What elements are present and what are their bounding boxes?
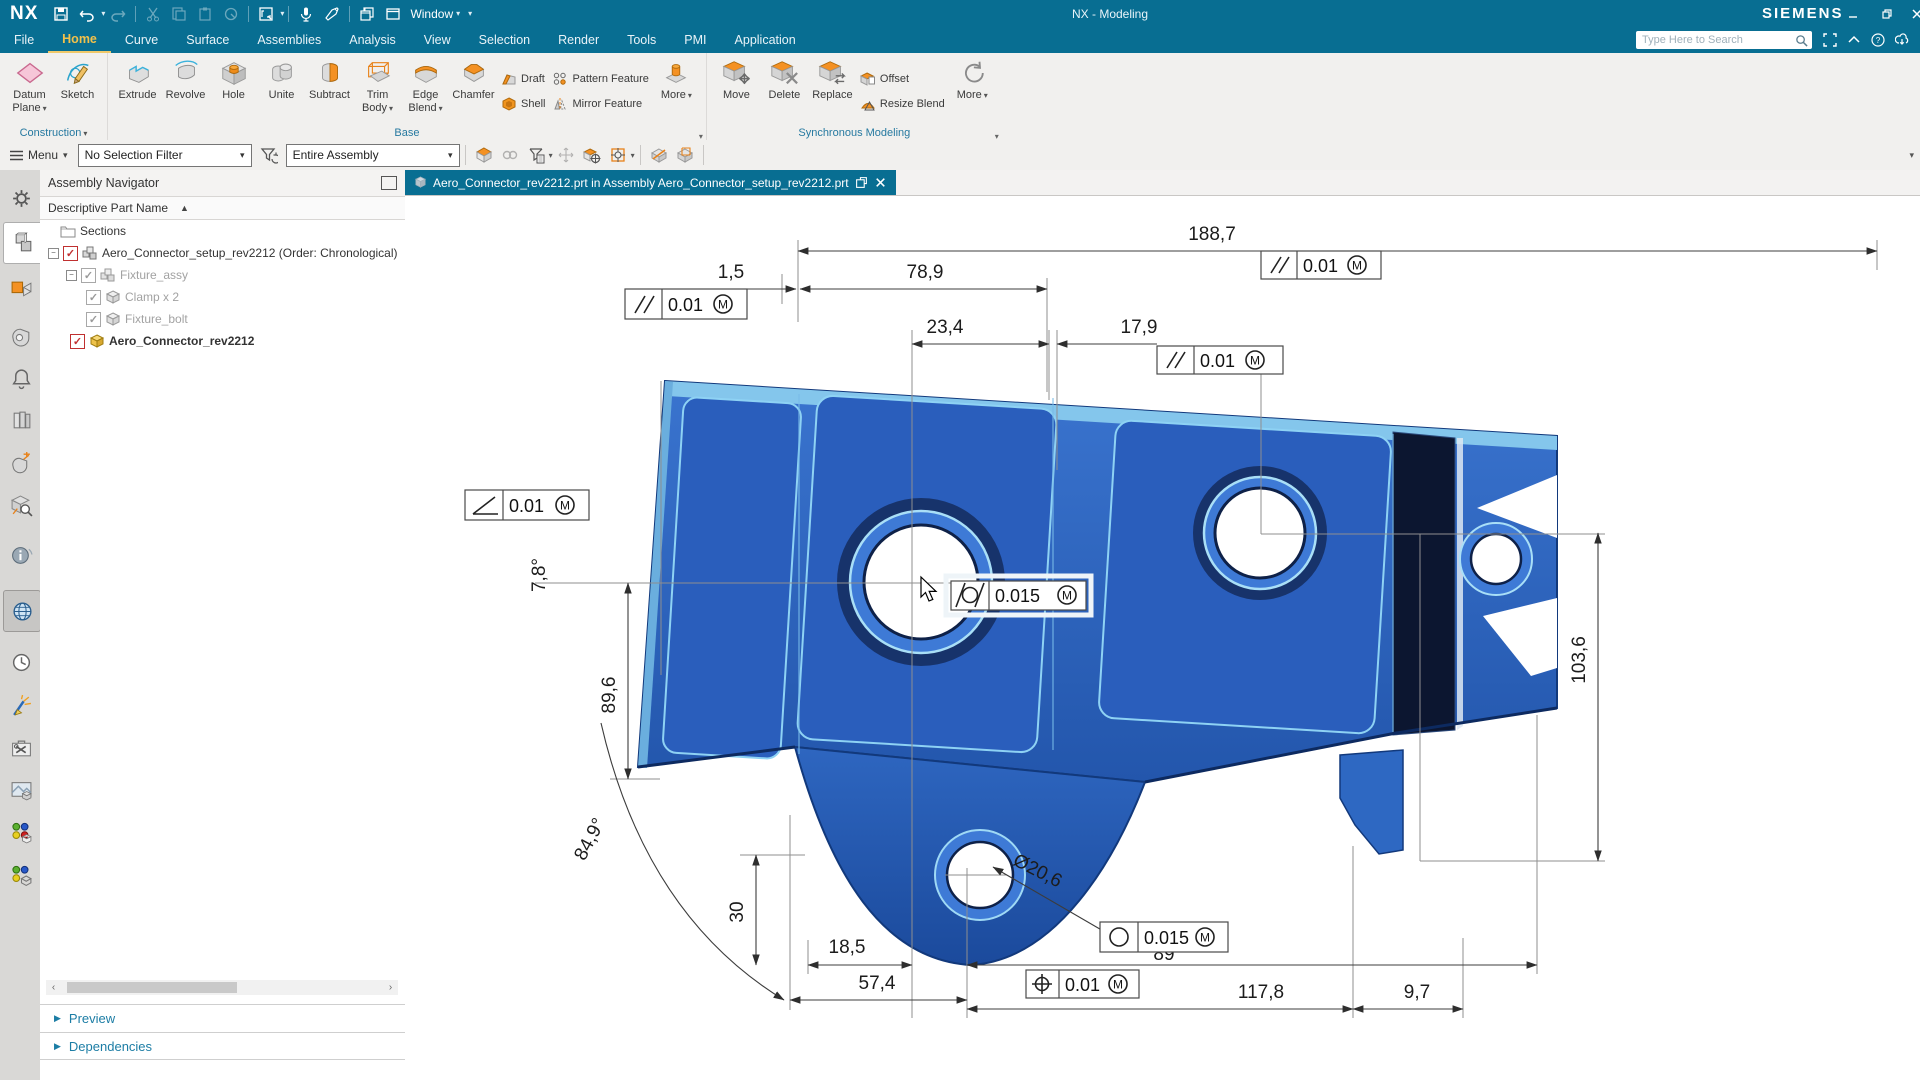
- mirror-feature-label: Mirror Feature: [572, 98, 642, 110]
- draft-icon: [501, 71, 517, 87]
- menu-label: Menu: [28, 148, 58, 162]
- datum-plane-button[interactable]: Datum Plane: [6, 55, 53, 127]
- hole-icon: [219, 58, 249, 88]
- dim-gap[interactable]: 1,5: [718, 262, 744, 283]
- feature-wand-icon[interactable]: [3, 685, 39, 725]
- sync-more-icon: [957, 58, 987, 88]
- fcf-position[interactable]: 0.01 M: [1026, 970, 1139, 998]
- selection-scope-select[interactable]: Entire Assembly ▾: [286, 144, 460, 167]
- dim-s117[interactable]: 117,8: [1238, 982, 1284, 1003]
- tree-row-assembly-root[interactable]: Aero_Connector_setup_rev2212 (Order: Chr…: [40, 242, 405, 264]
- svg-text:M: M: [1250, 354, 1260, 368]
- scrollbar-track[interactable]: [61, 981, 383, 994]
- search-input[interactable]: [1640, 33, 1795, 47]
- datum-plane-icon: [15, 58, 45, 88]
- sync-more-button[interactable]: More: [949, 55, 996, 127]
- fcf-parallelism-top[interactable]: 0.01 M: [1261, 251, 1381, 279]
- datum-measure-icon[interactable]: [3, 442, 39, 482]
- paste-icon[interactable]: [193, 3, 217, 25]
- fcf-circularity[interactable]: 0.015 M: [1100, 922, 1228, 952]
- tab-selection[interactable]: Selection: [465, 28, 544, 52]
- scrollbar-thumb[interactable]: [67, 982, 237, 993]
- sketch-button[interactable]: Sketch: [54, 55, 101, 127]
- panel-float-icon[interactable]: [381, 176, 397, 190]
- save-icon[interactable]: [49, 3, 73, 25]
- touch-mode-icon[interactable]: [320, 3, 344, 25]
- navigator-title: Assembly Navigator: [48, 176, 159, 190]
- draft-button[interactable]: Draft: [498, 68, 548, 90]
- color-palette-icon[interactable]: [3, 855, 39, 895]
- fullscreen-icon[interactable]: [1818, 30, 1842, 50]
- tab-home[interactable]: Home: [48, 27, 111, 53]
- replace-button[interactable]: Replace: [809, 55, 856, 127]
- ribbon-group-synchronous: Move Delete Replace Offset Resize Blend: [706, 53, 1002, 142]
- part-search-icon[interactable]: [3, 485, 39, 525]
- tree-row-work-part[interactable]: Aero_Connector_rev2212: [40, 330, 405, 352]
- part-file-icon: [414, 176, 427, 189]
- extrude-icon: [123, 58, 153, 88]
- preview-section[interactable]: ▶ Preview: [40, 1004, 419, 1031]
- assembly-icon: [82, 246, 98, 260]
- delete-label: Delete: [769, 89, 801, 102]
- part-navigator-icon[interactable]: [3, 315, 39, 355]
- svg-text:M: M: [1113, 978, 1123, 992]
- column-header[interactable]: Descriptive Part Name ▲: [40, 196, 405, 220]
- move-face-icon: [721, 58, 751, 88]
- assembly-navigator-icon[interactable]: [3, 222, 42, 264]
- subtract-button[interactable]: Subtract: [306, 55, 353, 127]
- checkbox-checked[interactable]: [63, 246, 78, 261]
- trim-body-button[interactable]: Trim Body: [354, 55, 401, 127]
- unite-button[interactable]: Unite: [258, 55, 305, 127]
- trim-body-icon: [363, 58, 393, 88]
- help-icon[interactable]: ?: [1866, 30, 1890, 50]
- undo-icon[interactable]: [75, 3, 99, 25]
- subtract-icon: [315, 58, 345, 88]
- fcf-cylindricity-highlighted[interactable]: 0.015 M: [946, 576, 1091, 615]
- resize-blend-label: Resize Blend: [880, 98, 945, 110]
- revolve-icon: [171, 58, 201, 88]
- part-panel-gap: [1457, 438, 1463, 730]
- svg-text:M: M: [718, 298, 728, 312]
- datum-plane-label: Datum Plane: [6, 89, 53, 114]
- sketch-label: Sketch: [61, 89, 95, 102]
- screenshot-icon[interactable]: [254, 3, 278, 25]
- revolve-button[interactable]: Revolve: [162, 55, 209, 127]
- alerts-bell-icon[interactable]: [3, 358, 39, 398]
- column-header-label: Descriptive Part Name: [48, 201, 168, 215]
- delete-button[interactable]: Delete: [761, 55, 808, 127]
- window-menu[interactable]: Window: [410, 7, 453, 21]
- selection-list-icon[interactable]: [523, 143, 549, 167]
- hole-label: Hole: [222, 89, 245, 102]
- settings-gear-icon[interactable]: [3, 178, 39, 218]
- base-more-icon: [661, 58, 691, 88]
- pattern-feature-label: Pattern Feature: [572, 73, 648, 85]
- dim-h2[interactable]: 30: [727, 901, 748, 922]
- pattern-feature-button[interactable]: Pattern Feature: [549, 68, 651, 90]
- tree-label: Aero_Connector_rev2212: [109, 334, 254, 348]
- tree-row-sections[interactable]: Sections: [40, 220, 405, 242]
- repeat-command-icon[interactable]: [219, 3, 243, 25]
- svg-text:0.01: 0.01: [668, 295, 703, 315]
- tab-tools[interactable]: Tools: [613, 28, 670, 52]
- ribbon-group-base: Extrude Revolve Hole Unite Subtract Trim…: [107, 53, 706, 142]
- part-clevis-hole[interactable]: [1471, 534, 1521, 584]
- dim-o1[interactable]: 18,5: [829, 937, 866, 958]
- tab-file[interactable]: File: [0, 28, 48, 52]
- move-object-icon[interactable]: [553, 143, 579, 167]
- toolbar-overflow-caret[interactable]: ▾: [1909, 150, 1914, 161]
- checkbox-checked-inactive[interactable]: [86, 290, 101, 305]
- mirror-feature-button[interactable]: Mirror Feature: [549, 93, 651, 115]
- window-layout-icon[interactable]: [381, 3, 405, 25]
- dim-w2[interactable]: 23,4: [927, 317, 964, 338]
- selection-filter-value: No Selection Filter: [85, 148, 183, 162]
- cut-icon[interactable]: [141, 3, 165, 25]
- offset-label: Offset: [880, 73, 909, 85]
- menu-button[interactable]: Menu ▾: [0, 148, 78, 162]
- part-tab-strip: Aero_Connector_rev2212.prt in Assembly A…: [405, 170, 1920, 196]
- move-button[interactable]: Move: [713, 55, 760, 127]
- history-clock-icon[interactable]: [3, 642, 39, 682]
- checkbox-checked-inactive[interactable]: [86, 312, 101, 327]
- replace-label: Replace: [812, 89, 852, 102]
- tree-label: Clamp x 2: [125, 290, 179, 304]
- collapse-icon[interactable]: [66, 270, 77, 281]
- minimize-button[interactable]: [1838, 0, 1868, 27]
- microphone-icon[interactable]: [294, 3, 318, 25]
- window-title: NX - Modeling: [1000, 7, 1220, 21]
- cascade-windows-icon[interactable]: [355, 3, 379, 25]
- extrude-button[interactable]: Extrude: [114, 55, 161, 127]
- ribbon-group-construction: Datum Plane Sketch Construction: [0, 53, 107, 142]
- part-pocket-1[interactable]: [662, 397, 802, 760]
- trim-body-label: Trim Body: [354, 89, 401, 114]
- collapse-icon[interactable]: [48, 248, 59, 259]
- dim-h1[interactable]: 89,6: [599, 677, 620, 714]
- svg-text:0.01: 0.01: [1303, 256, 1338, 276]
- csys-target-icon[interactable]: [605, 143, 631, 167]
- copy-icon[interactable]: [167, 3, 191, 25]
- tree-row-fixture-bolt[interactable]: Fixture_bolt: [40, 308, 405, 330]
- restore-button[interactable]: [1872, 0, 1902, 27]
- scroll-left-arrow[interactable]: ‹: [46, 982, 61, 993]
- nx-logo: NX: [0, 3, 48, 25]
- tree-label: Aero_Connector_setup_rev2212 (Order: Chr…: [102, 246, 398, 260]
- link-icon[interactable]: [497, 143, 523, 167]
- internet-globe-icon[interactable]: [3, 590, 41, 632]
- tab-assemblies[interactable]: Assemblies: [243, 28, 335, 52]
- siemens-logo: SIEMENS: [1762, 5, 1844, 22]
- expand-triangle-icon: ▶: [54, 1013, 61, 1024]
- tree-label: Sections: [80, 224, 126, 238]
- section-cut-icon[interactable]: [646, 143, 672, 167]
- menu-bar: File Home Curve Surface Assemblies Analy…: [0, 27, 1920, 53]
- dim-w3[interactable]: 17,9: [1121, 317, 1158, 338]
- dim-s97[interactable]: 9,7: [1404, 982, 1430, 1003]
- subtract-label: Subtract: [309, 89, 350, 102]
- replace-face-icon: [817, 58, 847, 88]
- scroll-right-arrow[interactable]: ›: [383, 982, 398, 993]
- sort-ascending-icon: ▲: [180, 203, 189, 213]
- window-menu-caret[interactable]: ▾: [456, 9, 460, 18]
- chamfer-icon: [459, 58, 489, 88]
- part-dark-panel[interactable]: [1393, 432, 1455, 735]
- svg-text:M: M: [560, 499, 570, 513]
- top-border-bar: Menu ▾ No Selection Filter ▾ Entire Asse…: [0, 140, 1920, 171]
- assembly-icon: [100, 268, 116, 282]
- tree-row-clamp[interactable]: Clamp x 2: [40, 286, 405, 308]
- hamburger-icon: [10, 150, 23, 161]
- shell-label: Shell: [521, 98, 545, 110]
- preview-label: Preview: [69, 1011, 115, 1026]
- part-aero-connector[interactable]: [638, 381, 1557, 965]
- tab-surface[interactable]: Surface: [172, 28, 243, 52]
- delete-face-icon: [769, 58, 799, 88]
- cloud-download-icon[interactable]: [1890, 30, 1914, 50]
- sync-more-label: More: [957, 89, 988, 102]
- svg-text:M: M: [1200, 931, 1210, 945]
- resize-blend-icon: [860, 96, 876, 112]
- close-tab-icon[interactable]: [874, 176, 887, 189]
- dim-overall-width[interactable]: 188,7: [1188, 224, 1236, 245]
- active-part-tab[interactable]: Aero_Connector_rev2212.prt in Assembly A…: [405, 170, 896, 195]
- cad-viewport[interactable]: 188,7 1,5 78,9 23,4 17,9 7,8° 89,6 84,9°…: [405, 170, 1920, 1080]
- information-icon[interactable]: [3, 535, 39, 575]
- edge-blend-button[interactable]: Edge Blend: [402, 55, 449, 127]
- fcf-parallelism-mid[interactable]: 0.01 M: [1157, 346, 1283, 374]
- constraint-navigator-icon[interactable]: [3, 270, 39, 310]
- draft-label: Draft: [521, 73, 545, 85]
- dim-o2[interactable]: 57,4: [859, 973, 896, 994]
- svg-text:0.01: 0.01: [1200, 351, 1235, 371]
- fcf-parallelism-left[interactable]: 0.01 M: [625, 289, 747, 319]
- dim-h3[interactable]: 103,6: [1569, 636, 1590, 684]
- tab-curve[interactable]: Curve: [111, 28, 172, 52]
- dim-angle2[interactable]: 84,9°: [570, 815, 609, 864]
- ribbon: Datum Plane Sketch Construction Extrude …: [0, 53, 1920, 141]
- command-search: [1636, 31, 1812, 49]
- redo-icon[interactable]: [106, 3, 130, 25]
- checkbox-checked[interactable]: [70, 334, 85, 349]
- part-bottom-tab[interactable]: [1340, 750, 1403, 854]
- svg-text:M: M: [1062, 589, 1072, 603]
- svg-text:0.01: 0.01: [509, 496, 544, 516]
- part-icon: [105, 290, 121, 304]
- offset-button[interactable]: Offset: [857, 68, 948, 90]
- unite-icon: [267, 58, 297, 88]
- selection-filter-caret: ▾: [240, 150, 245, 161]
- tab-render[interactable]: Render: [544, 28, 613, 52]
- tab-application[interactable]: Application: [721, 28, 810, 52]
- render-materials-icon[interactable]: [3, 770, 39, 810]
- edge-blend-icon: [411, 58, 441, 88]
- chamfer-label: Chamfer: [452, 89, 494, 102]
- minimize-ribbon-icon[interactable]: [1842, 30, 1866, 50]
- search-icon[interactable]: [1795, 34, 1808, 47]
- base-more-button[interactable]: More: [653, 55, 700, 127]
- sections-folder-icon: [60, 224, 76, 238]
- hole-button[interactable]: Hole: [210, 55, 257, 127]
- close-button[interactable]: [1902, 0, 1920, 27]
- tree-label: Fixture_assy: [120, 268, 188, 282]
- resource-bar: [0, 170, 41, 1080]
- assembly-navigator-panel: Assembly Navigator Descriptive Part Name…: [40, 170, 406, 1080]
- part-icon: [105, 312, 121, 326]
- mirror-feature-icon: [552, 96, 568, 112]
- selection-scope-value: Entire Assembly: [293, 148, 379, 162]
- tab-pmi[interactable]: PMI: [670, 28, 720, 52]
- title-bar: NX ▾ ▾ Window ▾ ▾ NX - Modeling SIEMENS: [0, 0, 1920, 27]
- wireframe-overlay-icon[interactable]: [672, 143, 698, 167]
- svg-text:0.015: 0.015: [995, 586, 1040, 606]
- shell-icon: [501, 96, 517, 112]
- resize-blend-button[interactable]: Resize Blend: [857, 93, 948, 115]
- tree-label: Fixture_bolt: [125, 312, 188, 326]
- edge-blend-label: Edge Blend: [402, 89, 449, 114]
- work-part-icon: [89, 334, 105, 348]
- svg-text:0.015: 0.015: [1144, 928, 1189, 948]
- dim-w1[interactable]: 78,9: [907, 262, 944, 283]
- detach-tab-icon[interactable]: [855, 176, 868, 189]
- shell-button[interactable]: Shell: [498, 93, 548, 115]
- tab-view[interactable]: View: [410, 28, 465, 52]
- extrude-label: Extrude: [119, 89, 157, 102]
- part-bore-2[interactable]: [1215, 488, 1305, 578]
- checkbox-checked-inactive[interactable]: [81, 268, 96, 283]
- customize-quick-access-caret[interactable]: ▾: [468, 9, 472, 18]
- snap-point-icon[interactable]: [471, 143, 497, 167]
- active-tab-title: Aero_Connector_rev2212.prt in Assembly A…: [433, 176, 849, 190]
- filter-reset-icon[interactable]: [256, 143, 282, 167]
- toolbox-icon[interactable]: [3, 728, 39, 768]
- selection-scope-caret: ▾: [448, 150, 453, 161]
- chamfer-button[interactable]: Chamfer: [450, 55, 497, 127]
- dependencies-label: Dependencies: [69, 1039, 152, 1054]
- screenshot-dropdown-caret[interactable]: ▾: [280, 9, 284, 18]
- offset-region-icon: [860, 71, 876, 87]
- wcs-cube-icon[interactable]: [579, 143, 605, 167]
- csys-caret[interactable]: ▾: [631, 151, 635, 160]
- menu-caret: ▾: [63, 150, 68, 161]
- tab-analysis[interactable]: Analysis: [335, 28, 410, 52]
- move-label: Move: [723, 89, 750, 102]
- dependencies-section[interactable]: ▶ Dependencies: [40, 1032, 419, 1060]
- history-stack-icon[interactable]: [3, 400, 39, 440]
- expand-triangle-icon: ▶: [54, 1041, 61, 1052]
- pattern-feature-icon: [552, 71, 568, 87]
- svg-text:0.01: 0.01: [1065, 975, 1100, 995]
- sketch-icon: [63, 58, 93, 88]
- revolve-label: Revolve: [166, 89, 206, 102]
- base-more-label: More: [661, 89, 692, 102]
- selection-filter-select[interactable]: No Selection Filter ▾: [78, 144, 252, 167]
- svg-text:?: ?: [1876, 36, 1881, 45]
- dim-angle1[interactable]: 7,8°: [529, 558, 550, 592]
- undo-dropdown-caret[interactable]: ▾: [101, 9, 105, 18]
- horizontal-scrollbar[interactable]: ‹ ›: [46, 980, 398, 995]
- svg-text:M: M: [1352, 259, 1362, 273]
- fcf-angularity[interactable]: 0.01 M: [465, 490, 589, 520]
- reuse-library-icon[interactable]: [3, 812, 39, 852]
- navigator-header: Assembly Navigator: [40, 170, 405, 196]
- unite-label: Unite: [269, 89, 295, 102]
- tree-row-fixture-assy[interactable]: Fixture_assy: [40, 264, 405, 286]
- graphics-window[interactable]: Aero_Connector_rev2212.prt in Assembly A…: [405, 170, 1920, 1080]
